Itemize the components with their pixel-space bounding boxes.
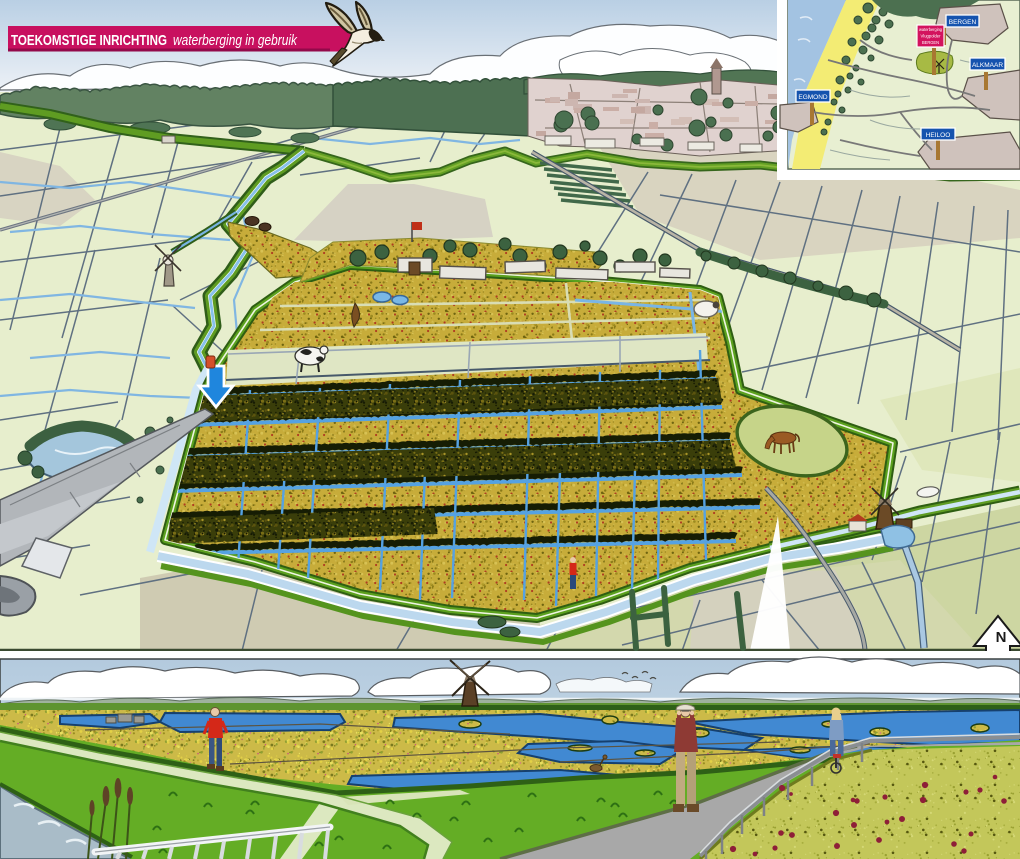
svg-text:waterberging: waterberging — [919, 27, 942, 33]
svg-text:EGMOND: EGMOND — [798, 94, 828, 101]
svg-text:waterberging in gebruik: waterberging in gebruik — [173, 33, 298, 49]
svg-text:TOEKOMSTIGE INRICHTING: TOEKOMSTIGE INRICHTING — [11, 33, 167, 49]
svg-text:ALKMAAR: ALKMAAR — [972, 62, 1003, 69]
svg-text:N: N — [996, 629, 1007, 646]
svg-text:Vlugpolder: Vlugpolder — [921, 34, 941, 40]
svg-text:BERGEN: BERGEN — [949, 19, 977, 26]
svg-text:HEILOO: HEILOO — [926, 132, 951, 139]
svg-text:BERGEN: BERGEN — [922, 40, 939, 46]
